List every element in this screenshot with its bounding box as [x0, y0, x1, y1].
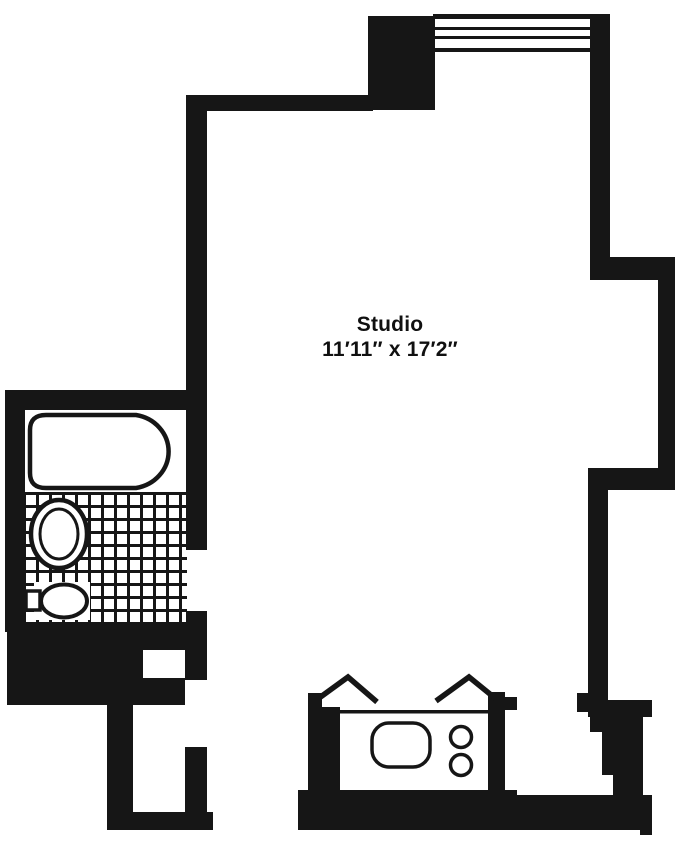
- stove-burner-icon: [451, 727, 472, 748]
- kitchen-counter-edge: [340, 710, 488, 714]
- bathroom-sink-icon: [41, 585, 87, 618]
- fixtures-layer: [0, 0, 682, 846]
- kitchen-sink-icon: [372, 723, 430, 767]
- sink-faucet: [26, 591, 40, 610]
- door-swing-right-icon: [436, 677, 501, 703]
- stove-burner-icon: [451, 755, 472, 776]
- room-name: Studio: [280, 312, 500, 337]
- room-dimensions: 11′11″ x 17′2″: [280, 337, 500, 362]
- floor-plan: Studio 11′11″ x 17′2″: [0, 0, 682, 846]
- bathtub-icon: [30, 415, 169, 488]
- room-label: Studio 11′11″ x 17′2″: [280, 312, 500, 362]
- door-swing-left-icon: [315, 677, 377, 702]
